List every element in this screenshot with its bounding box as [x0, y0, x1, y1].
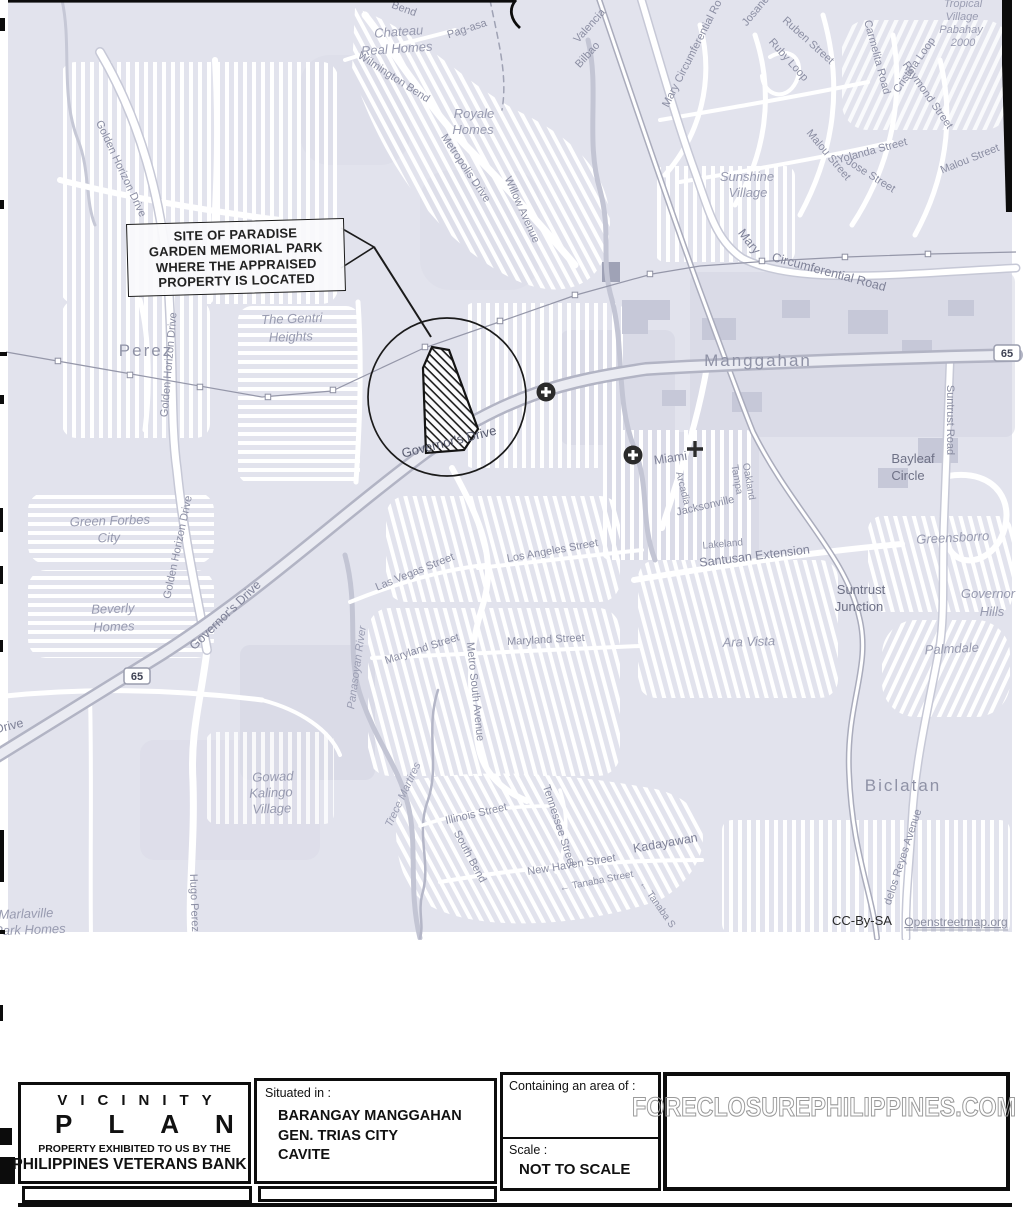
map-label-openstreetmap-link[interactable]: Openstreetmap.org [904, 915, 1007, 929]
map-label-beverly-homes-1: Beverly [91, 600, 136, 617]
scale-label: Scale : [509, 1143, 652, 1157]
map-label-gowad-village-3: Village [252, 800, 291, 816]
titleblock-empty-cell-left [22, 1186, 252, 1203]
map-label-royale-homes-2: Homes [452, 122, 494, 137]
titleblock-empty-cell-middle [258, 1186, 497, 1202]
titleblock-vicinity-plan: VICINITY PLAN PROPERTY EXHIBITED TO US B… [18, 1082, 251, 1184]
map-label-suntrust-junction-2: Junction [835, 599, 883, 614]
map-label-marlaville-1: Marlaville [0, 905, 54, 922]
situated-city: GEN. TRIAS CITY [278, 1127, 486, 1147]
bank-name: PHILIPPINES VETERANS BANK [11, 1156, 248, 1174]
hospital-icon [624, 446, 643, 465]
map-label-green-forbes-city-1: Green Forbes [70, 512, 151, 530]
map-canvas: BendChateauReal HomesPag-asaWilmington B… [0, 0, 1024, 940]
scan-artifact [0, 1128, 12, 1145]
titleblock-bottom-rule [18, 1203, 1012, 1207]
scale-value: NOT TO SCALE [519, 1161, 652, 1178]
map-label-perez: Perez [119, 341, 173, 360]
map-label-palmdale: Palmdale [924, 640, 979, 658]
scan-artifact [0, 508, 3, 532]
scan-artifact [0, 352, 7, 356]
map-label-sunshine-village-2: Village [729, 185, 768, 200]
scan-artifact [0, 640, 3, 652]
map-label-bayleaf-circle-1: Bayleaf [891, 451, 935, 466]
map-label-tropical-village-1: Tropical [944, 0, 983, 10]
vicinity-title-row1: VICINITY [21, 1092, 248, 1109]
map-label-gowad-village-1: Gowad [252, 768, 294, 784]
map-label-gowad-village-2: Kalingo [249, 784, 293, 801]
map-label-the-gentri-heights-2: Heights [269, 328, 314, 345]
scan-artifact [0, 18, 5, 31]
map-label-royale-homes-1: Royale [454, 106, 494, 121]
exhibited-by-line: PROPERTY EXHIBITED TO US BY THE [21, 1143, 248, 1155]
route-65-east: 65 [994, 345, 1020, 361]
route-65-west: 65 [124, 668, 150, 684]
map-label-beverly-homes-2: Homes [93, 618, 135, 634]
titleblock-situated-in: Situated in : BARANGAY MANGGAHAN GEN. TR… [254, 1078, 497, 1184]
scan-artifact [0, 830, 4, 882]
svg-text:65: 65 [131, 671, 143, 683]
situated-in-label: Situated in : [265, 1086, 486, 1100]
scan-artifact [0, 566, 3, 584]
map-label-tropical-village-3: Pabahay [939, 24, 984, 36]
vicinity-title-row2: PLAN [21, 1111, 248, 1137]
svg-text:65: 65 [1001, 348, 1013, 360]
map-label-suntrust-junction-1: Suntrust [837, 582, 886, 597]
scan-artifact [0, 930, 5, 934]
watermark: FORECLOSUREPHILIPPINES.COM [628, 1086, 1020, 1130]
map-label-sunshine-village-1: Sunshine [720, 169, 774, 184]
watermark-text: FORECLOSUREPHILIPPINES.COM [632, 1092, 1016, 1122]
situated-barangay: BARANGAY MANGGAHAN [278, 1107, 486, 1127]
map-label-tropical-village-4: 2000 [950, 37, 976, 49]
map-label-the-gentri-heights-1: The Gentri [261, 310, 324, 327]
map-label-ara-vista: Ara Vista [721, 633, 775, 650]
scan-artifact [0, 1005, 3, 1021]
map-label-manggahan: Manggahan [704, 351, 812, 370]
map-label-bayleaf-circle-2: Circle [891, 468, 924, 483]
map-label-green-forbes-city-2: City [97, 530, 121, 546]
situated-province: CAVITE [278, 1146, 486, 1166]
map-label-marlaville-2: Park Homes [0, 921, 66, 939]
map-label-governor-hills-2: Hills [980, 604, 1005, 619]
scan-artifact [0, 200, 4, 209]
map-label-biclatan: Biclatan [865, 776, 941, 795]
map-label-cc-by-sa: CC-By-SA [832, 913, 892, 928]
vicinity-map: BendChateauReal HomesPag-asaWilmington B… [0, 0, 1024, 940]
map-label-tropical-village-2: Village [946, 11, 979, 23]
map-label-governor-hills-1: Governor [961, 586, 1016, 601]
map-label-suntrust-road: Suntrust Road [944, 385, 956, 455]
map-label-hugo-perez: Hugo Perez [187, 874, 201, 932]
scan-artifact [0, 395, 4, 404]
site-callout: SITE OF PARADISE GARDEN MEMORIAL PARK WH… [126, 218, 346, 297]
hospital-icon [537, 383, 556, 402]
